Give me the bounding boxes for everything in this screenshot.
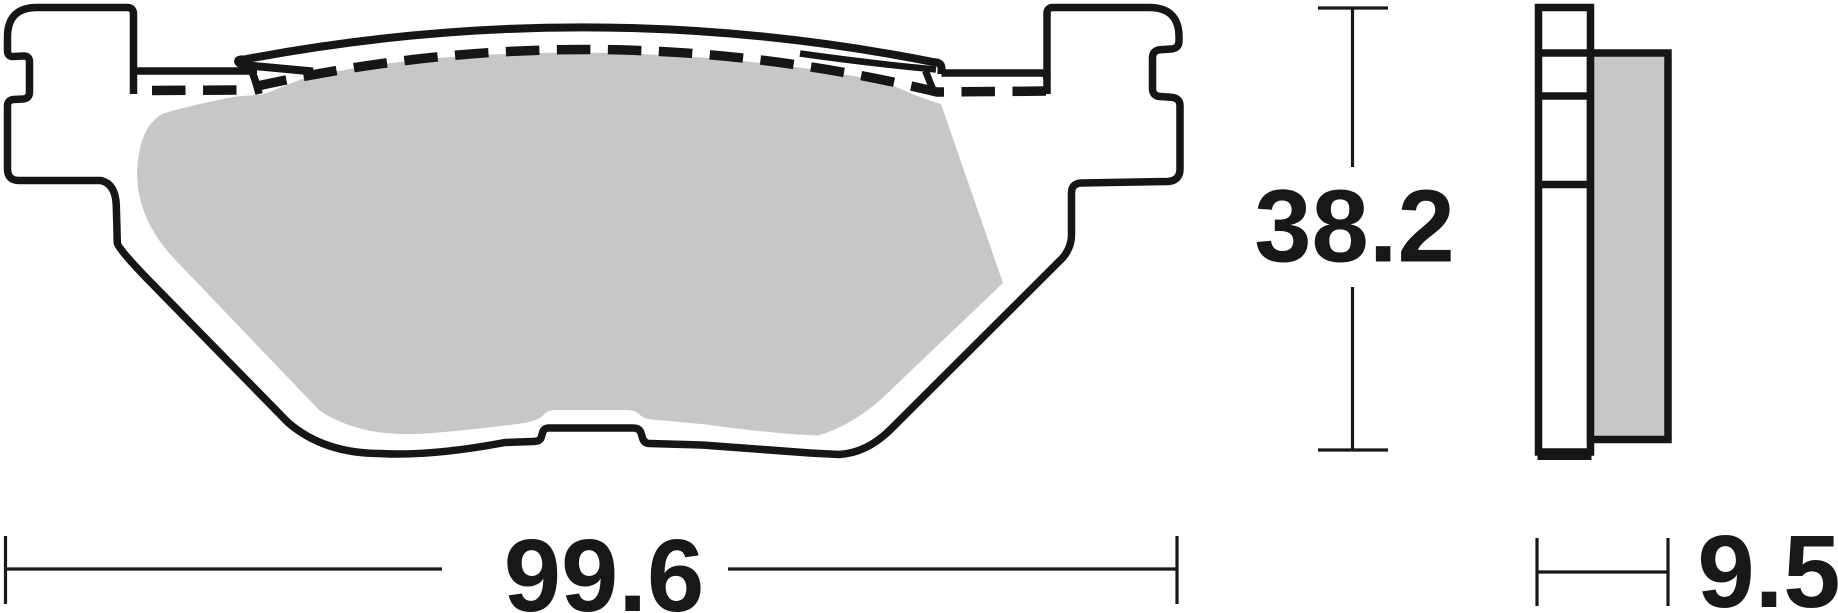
svg-text:38.2: 38.2 — [1254, 169, 1454, 284]
svg-text:9.5: 9.5 — [1697, 514, 1838, 613]
svg-text:99.6: 99.6 — [504, 518, 704, 613]
